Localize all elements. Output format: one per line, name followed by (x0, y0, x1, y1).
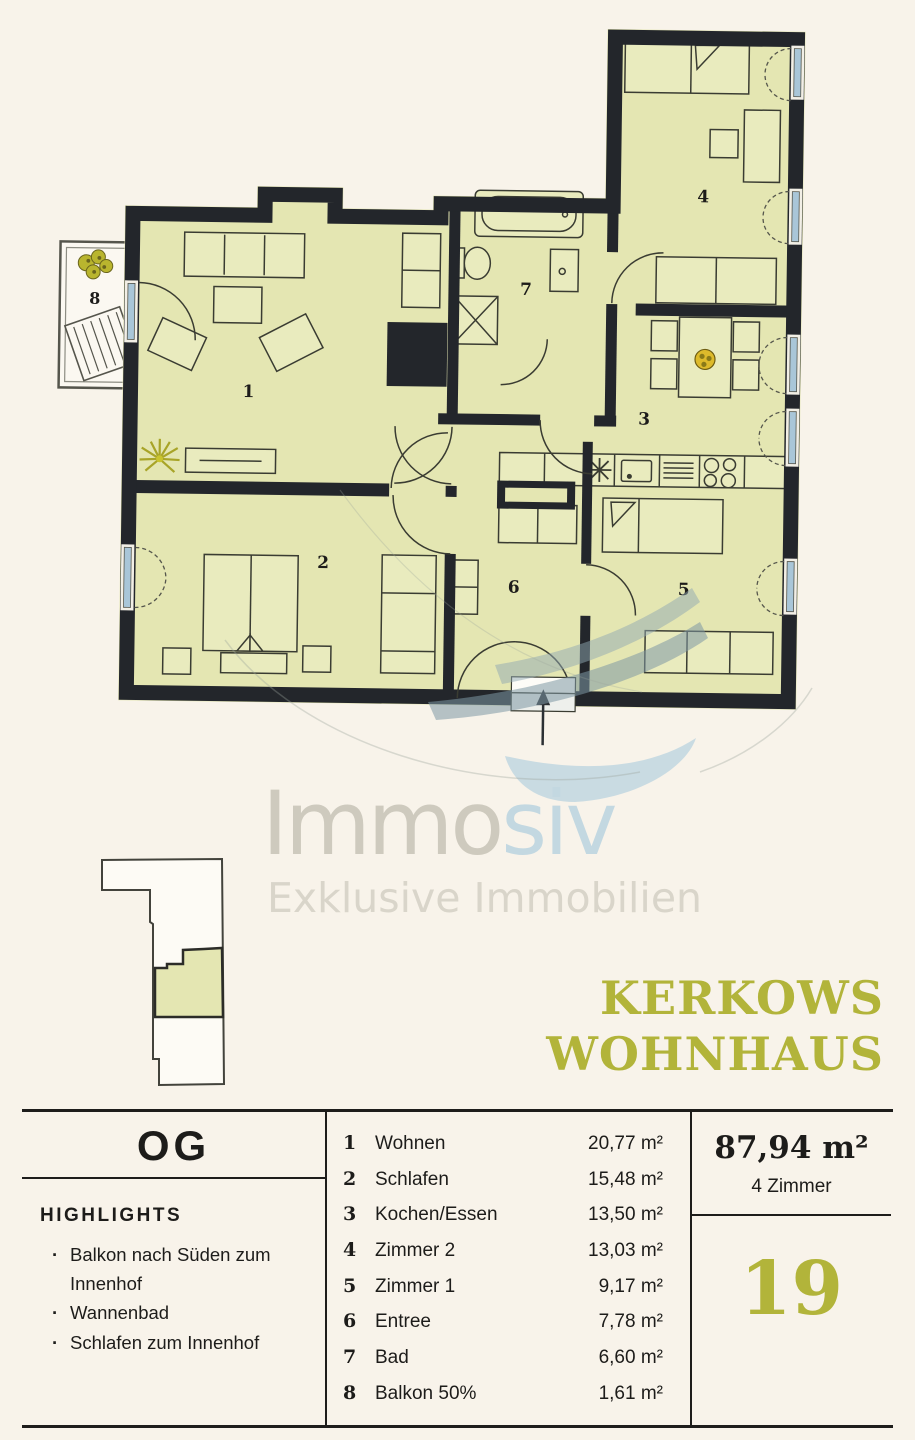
room-row: 1 Wohnen 20,77 m² (343, 1132, 663, 1168)
highlight-text: Balkon nach Süden zum Innenhof (70, 1244, 271, 1294)
expose-page: 8 (0, 0, 915, 1440)
unit-location-highlight (155, 948, 223, 1017)
bullet-icon: · (52, 1329, 58, 1358)
brand-tagline: Exklusive Immobilien (267, 878, 702, 919)
project-title: KERKOWS WOHNHAUS (546, 970, 884, 1082)
info-col-floor-highlights: OG HIGHLIGHTS · Balkon nach Süden zum In… (22, 1112, 325, 1425)
room-label: Zimmer 2 (375, 1240, 455, 1262)
room-row: 8 Balkon 50% 1,61 m² (343, 1382, 663, 1418)
washing-machine (453, 296, 498, 345)
room-area: 9,17 m² (599, 1276, 663, 1298)
floor-label: OG (22, 1112, 325, 1179)
brand-logo: Immosiv (262, 780, 615, 868)
highlight-text: Wannenbad (70, 1302, 169, 1323)
room-label: Kochen/Essen (375, 1204, 498, 1226)
room-row: 7 Bad 6,60 m² (343, 1346, 663, 1382)
plan-room-number-1: 1 (242, 382, 254, 402)
room-number: 4 (343, 1239, 375, 1261)
plan-room-number-3: 3 (638, 409, 650, 429)
info-table: OG HIGHLIGHTS · Balkon nach Süden zum In… (22, 1109, 893, 1428)
fruit-bowl-icon (695, 349, 715, 369)
bullet-icon: · (52, 1241, 58, 1270)
room-row: 5 Zimmer 1 9,17 m² (343, 1275, 663, 1311)
plan-room-number-7: 7 (520, 280, 532, 300)
bullet-icon: · (52, 1299, 58, 1328)
plan-room-number-8: 8 (89, 289, 100, 308)
room-area: 1,61 m² (599, 1383, 663, 1405)
summary-col: 87,94 m² 4 Zimmer 19 (690, 1112, 891, 1425)
room-area: 6,60 m² (599, 1347, 663, 1369)
room-number: 3 (343, 1203, 375, 1225)
room-number: 8 (343, 1382, 375, 1404)
room-number: 5 (343, 1275, 375, 1297)
highlight-text: Schlafen zum Innenhof (70, 1332, 259, 1353)
room-row: 2 Schlafen 15,48 m² (343, 1168, 663, 1204)
room-label: Zimmer 1 (375, 1276, 455, 1298)
project-title-line2: WOHNHAUS (546, 1026, 884, 1082)
project-title-line1: KERKOWS (546, 970, 884, 1026)
brand-logo-primary: Immo (262, 772, 501, 875)
room-label: Balkon 50% (375, 1383, 476, 1405)
room-label: Bad (375, 1347, 409, 1369)
bath-sink (550, 249, 579, 291)
highlights-list: · Balkon nach Süden zum Innenhof · Wanne… (52, 1241, 284, 1357)
room-number: 2 (343, 1168, 375, 1190)
room-row: 3 Kochen/Essen 13,50 m² (343, 1203, 663, 1239)
unit-number: 19 (692, 1252, 891, 1326)
plan-room-number-2: 2 (317, 553, 329, 573)
highlights-heading: HIGHLIGHTS (40, 1205, 325, 1227)
highlight-item: · Schlafen zum Innenhof (52, 1329, 284, 1358)
room-number: 6 (343, 1310, 375, 1332)
room-area: 20,77 m² (588, 1133, 663, 1155)
room-area: 13,03 m² (588, 1240, 663, 1262)
brand-logo-secondary: siv (501, 772, 614, 875)
room-area: 13,50 m² (588, 1204, 663, 1226)
floor-plan: 8 (0, 0, 915, 830)
room-label: Entree (375, 1311, 431, 1333)
plan-room-number-6: 6 (508, 578, 520, 598)
plan-room-number-4: 4 (697, 187, 709, 207)
room-number: 7 (343, 1346, 375, 1368)
room-label: Wohnen (375, 1133, 445, 1155)
room-label: Schlafen (375, 1169, 449, 1191)
room-row: 4 Zimmer 2 13,03 m² (343, 1239, 663, 1275)
room-row: 6 Entree 7,78 m² (343, 1310, 663, 1346)
building-outline (102, 859, 224, 1085)
highlight-item: · Balkon nach Süden zum Innenhof (52, 1241, 284, 1298)
room-area: 7,78 m² (599, 1311, 663, 1333)
total-area: 87,94 m² (692, 1112, 891, 1166)
highlight-item: · Wannenbad (52, 1299, 284, 1328)
room-number: 1 (343, 1132, 375, 1154)
room-area: 15,48 m² (588, 1169, 663, 1191)
room-list: 1 Wohnen 20,77 m² 2 Schlafen 15,48 m² 3 … (325, 1112, 690, 1425)
rooms-count: 4 Zimmer (692, 1176, 891, 1216)
